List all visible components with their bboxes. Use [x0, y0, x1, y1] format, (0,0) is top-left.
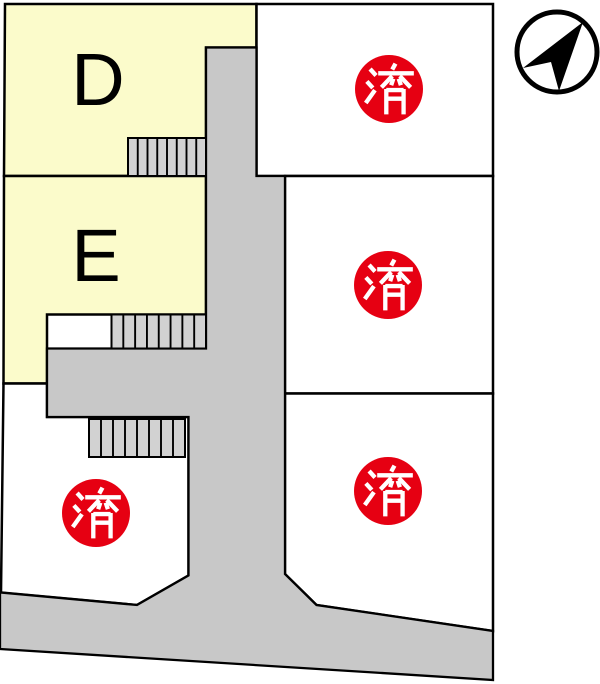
sold-badge-top-right: [355, 55, 423, 123]
stairs-upper: [128, 138, 206, 176]
stairs-lower: [89, 419, 185, 457]
plot-e-label: E: [71, 214, 120, 297]
lot-map: D E: [0, 0, 600, 684]
sold-badge-middle-right: [354, 251, 422, 319]
sold-badge-bottom-right: [354, 457, 422, 525]
plot-d-label: D: [71, 38, 124, 121]
lot-map-drawing: D E: [0, 0, 600, 684]
sold-badge-bottom-left: [62, 479, 130, 547]
stairs-middle: [112, 315, 207, 349]
